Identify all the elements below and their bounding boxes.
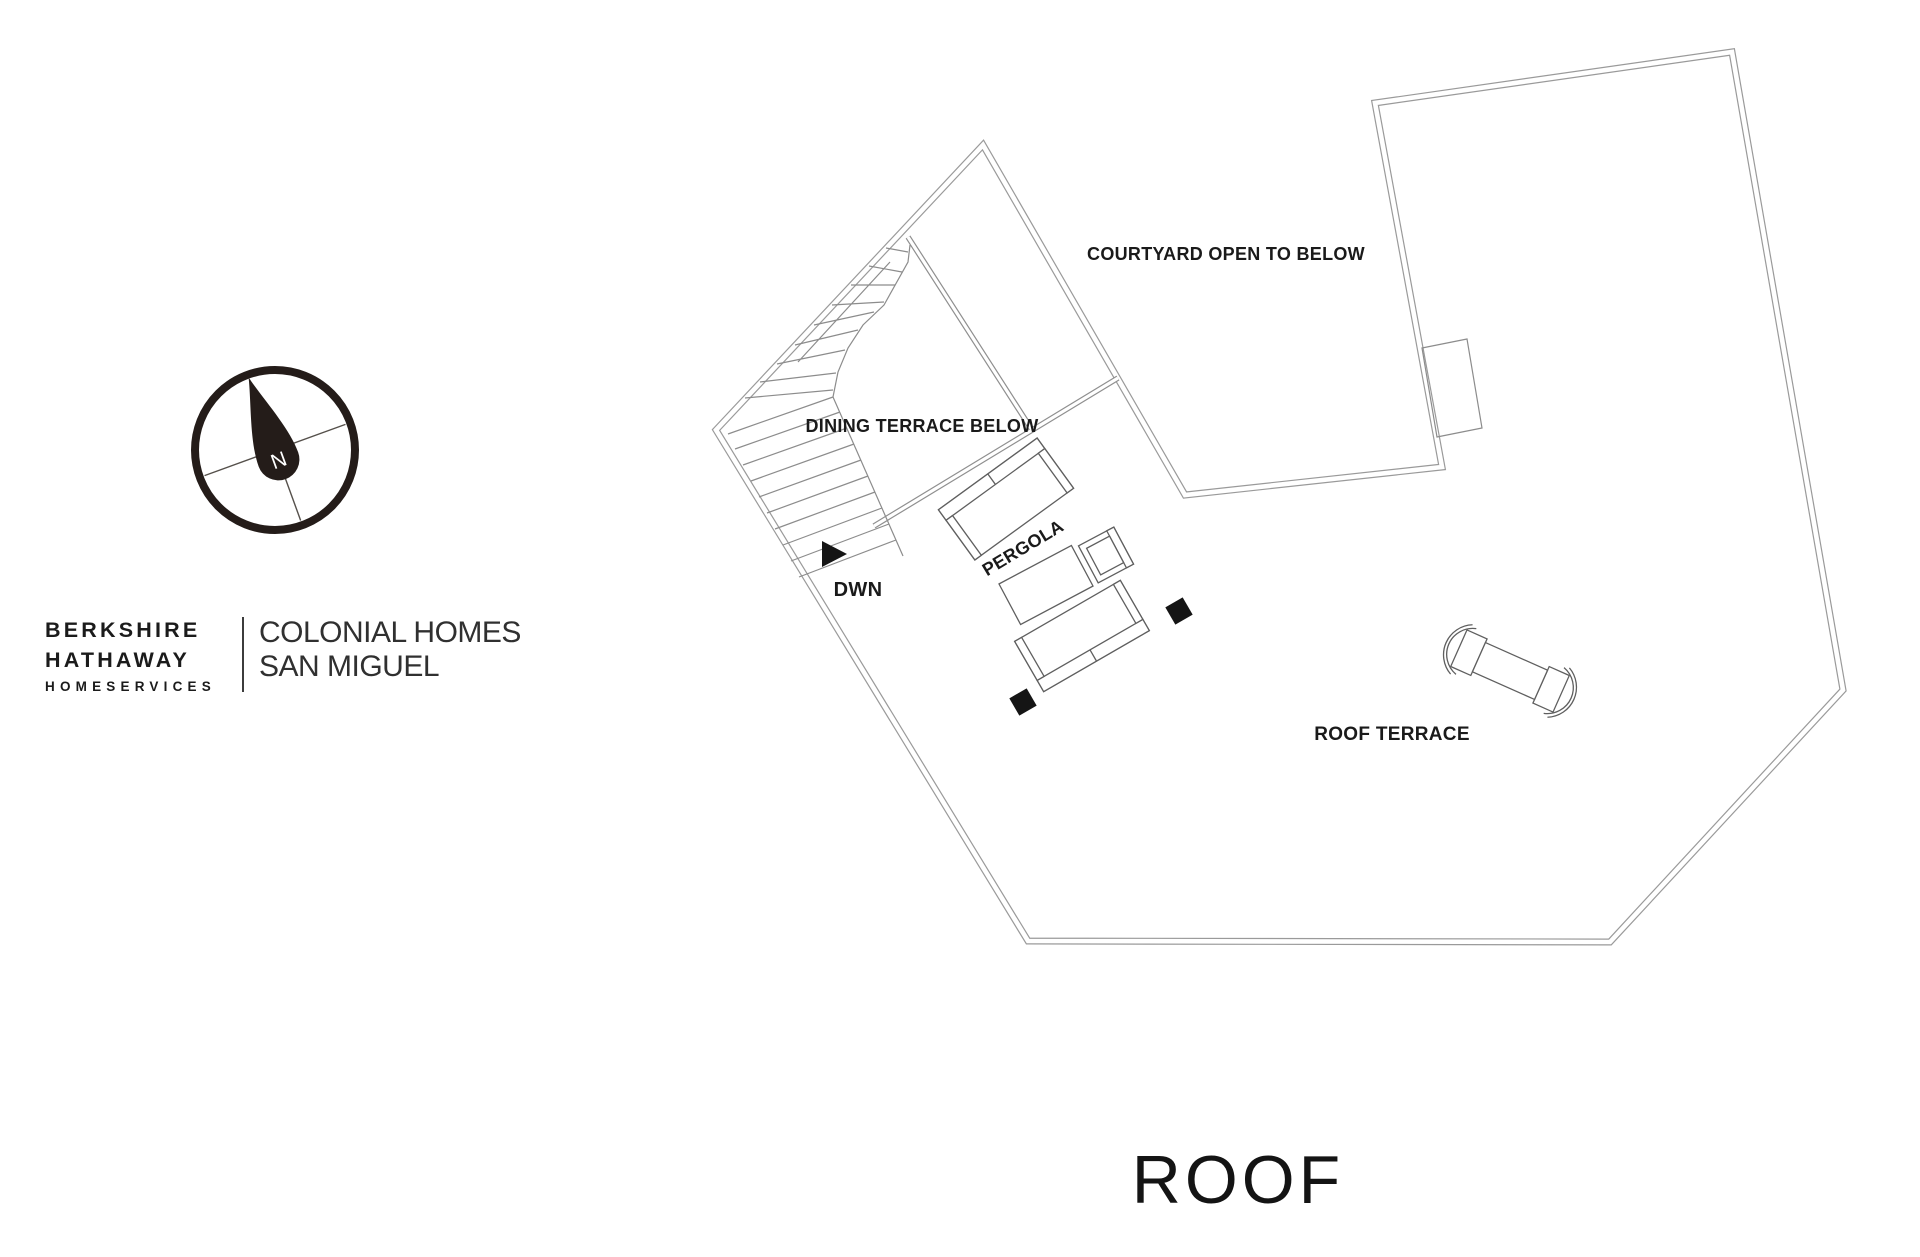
stairs xyxy=(728,245,910,577)
pergola-post-east xyxy=(1165,597,1192,624)
brand-line-homeservices: HOMESERVICES xyxy=(45,679,216,694)
plan-walls xyxy=(716,52,1843,942)
floor-plan-canvas: N BERKSHIRE HATHAWAY HOMESERVICES COLONI… xyxy=(0,0,1920,1257)
brand-line-san-miguel: SAN MIGUEL xyxy=(259,650,439,683)
label-dining-terrace: DINING TERRACE BELOW xyxy=(806,416,1039,436)
outer-wall-core xyxy=(716,52,1843,942)
brand-line-hathaway: HATHAWAY xyxy=(45,648,190,672)
brand-line-colonial-homes: COLONIAL HOMES xyxy=(259,616,521,649)
plan-title: ROOF xyxy=(1132,1142,1344,1218)
label-dwn: DWN xyxy=(834,579,883,601)
label-roof-terrace: ROOF TERRACE xyxy=(1314,724,1470,745)
chaise-lounge xyxy=(1435,618,1585,724)
pergola-post-west xyxy=(1009,688,1036,715)
sofa-upper xyxy=(938,438,1073,560)
compass-needle xyxy=(229,370,305,486)
plan-labels: COURTYARD OPEN TO BELOW DINING TERRACE B… xyxy=(806,244,1470,745)
label-courtyard: COURTYARD OPEN TO BELOW xyxy=(1087,244,1365,264)
furniture xyxy=(938,438,1584,724)
brand-logo: BERKSHIRE HATHAWAY HOMESERVICES COLONIAL… xyxy=(45,616,521,694)
brand-line-berkshire: BERKSHIRE xyxy=(45,618,200,642)
compass-rose: N xyxy=(178,352,371,546)
outer-wall xyxy=(716,52,1843,942)
